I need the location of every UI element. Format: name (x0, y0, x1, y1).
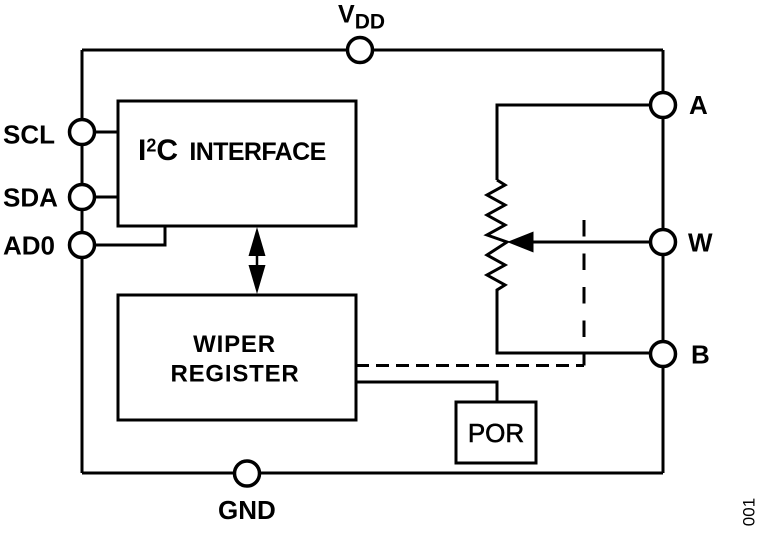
svg-text:REGISTER: REGISTER (170, 361, 299, 388)
svg-text:A: A (689, 90, 708, 120)
svg-text:WIPER: WIPER (193, 331, 276, 358)
svg-text:I2C INTERFACE: I2C INTERFACE (138, 134, 326, 167)
svg-text:W: W (688, 228, 713, 258)
svg-text:SCL: SCL (3, 120, 55, 150)
svg-text:B: B (691, 340, 710, 370)
svg-text:001: 001 (740, 498, 759, 526)
svg-text:AD0: AD0 (3, 231, 55, 261)
svg-text:POR: POR (468, 418, 524, 448)
svg-text:GND: GND (218, 495, 276, 525)
svg-text:SDA: SDA (3, 183, 58, 213)
